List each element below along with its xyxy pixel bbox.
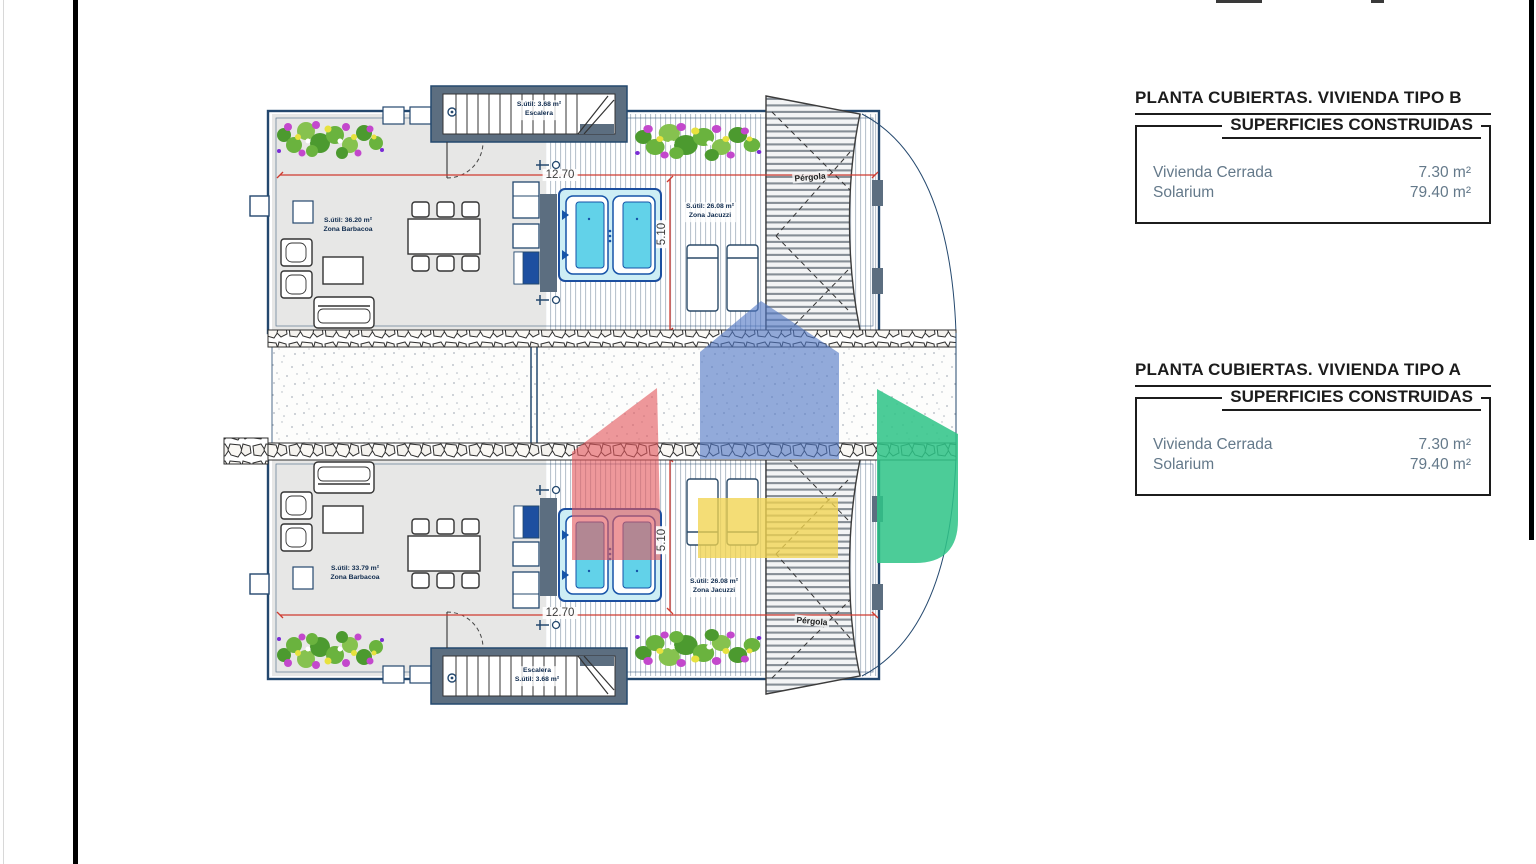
dim-width-top: 12.70 [543, 169, 578, 181]
right-border-rule [1529, 0, 1534, 540]
panel-title: PLANTA CUBIERTAS. VIVIENDA TIPO B [1135, 88, 1491, 115]
barbacoa-bottom-label: S.útil: 33.79 m²Zona Barbacoa [330, 565, 379, 583]
sheet: S.útil: 3.68 m²Escalera S.útil: 36.20 m²… [0, 0, 1536, 864]
surface-label: Solarium [1153, 183, 1214, 203]
surface-value: 79.40 m² [1410, 455, 1471, 475]
surface-label: Vivienda Cerrada [1153, 435, 1272, 455]
jacuzzi-bottom-label: S.útil: 26.08 m²Zona Jacuzzi [688, 577, 740, 597]
legend-panel-tipo-b: PLANTA CUBIERTAS. VIVIENDA TIPO B SUPERF… [1135, 88, 1491, 224]
surface-box: SUPERFICIES CONSTRUIDAS Vivienda Cerrada… [1135, 125, 1491, 224]
panel-title: PLANTA CUBIERTAS. VIVIENDA TIPO A [1135, 360, 1491, 387]
panel-subtitle: SUPERFICIES CONSTRUIDAS [1222, 387, 1481, 411]
surface-value: 7.30 m² [1418, 435, 1471, 455]
left-border-rule [73, 0, 78, 864]
surface-value: 7.30 m² [1418, 163, 1471, 183]
dim-depth-bottom: 5.10 [656, 526, 668, 554]
surface-label: Vivienda Cerrada [1153, 163, 1272, 183]
stair-top-label: S.útil: 3.68 m²Escalera [515, 100, 563, 120]
surface-row: Vivienda Cerrada 7.30 m² [1153, 163, 1471, 183]
surface-row: Solarium 79.40 m² [1153, 183, 1471, 203]
left-faint-rule [3, 0, 4, 864]
surface-label: Solarium [1153, 455, 1214, 475]
panel-subtitle: SUPERFICIES CONSTRUIDAS [1222, 115, 1481, 139]
cropped-mark [1216, 0, 1262, 3]
jacuzzi-top-label: S.útil: 26.08 m²Zona Jacuzzi [684, 202, 736, 222]
surface-box: SUPERFICIES CONSTRUIDAS Vivienda Cerrada… [1135, 397, 1491, 496]
barbacoa-top-label: S.útil: 36.20 m²Zona Barbacoa [323, 217, 372, 235]
surface-value: 79.40 m² [1410, 183, 1471, 203]
surface-row: Solarium 79.40 m² [1153, 455, 1471, 475]
surface-row: Vivienda Cerrada 7.30 m² [1153, 435, 1471, 455]
stair-bottom-label: EscaleraS.útil: 3.68 m² [513, 666, 561, 686]
dim-depth-top: 5.10 [656, 220, 668, 248]
top-unit [250, 86, 956, 344]
logo-yellow-shape [698, 498, 838, 558]
cropped-mark [1371, 0, 1384, 3]
dim-width-bottom: 12.70 [543, 607, 578, 619]
legend-panel-tipo-a: PLANTA CUBIERTAS. VIVIENDA TIPO A SUPERF… [1135, 360, 1491, 496]
